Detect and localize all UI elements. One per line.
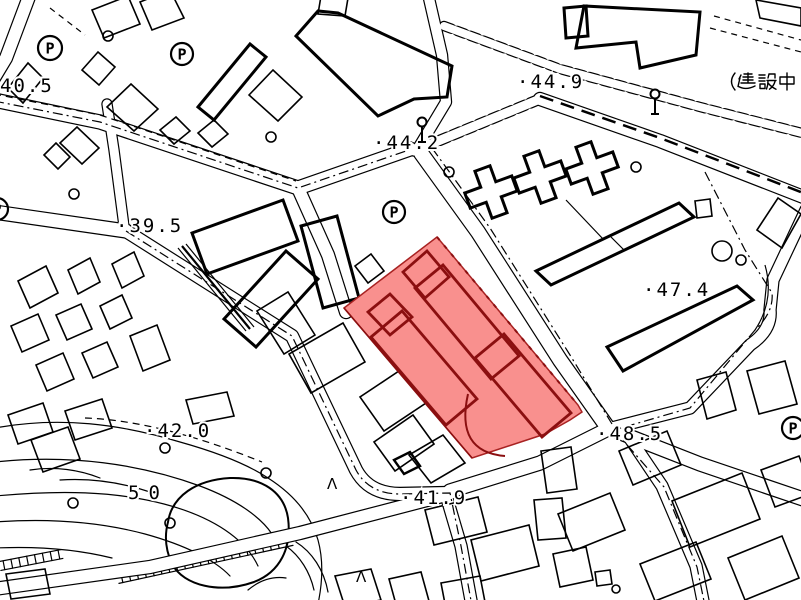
vegetation-circle-icon	[266, 132, 276, 142]
spot-elevation-label: 40.5	[0, 75, 54, 97]
map-viewport: PPPPPΛΛ 40.5·39.5·44.2·44.9·47.4·42.0·41…	[0, 0, 801, 600]
building	[534, 498, 566, 540]
road-surface	[540, 99, 801, 198]
building	[82, 342, 118, 378]
building	[130, 325, 170, 371]
streetlight-icon	[651, 90, 660, 115]
building	[11, 314, 49, 352]
building	[56, 304, 92, 340]
building	[747, 361, 797, 414]
spot-elevation-label: ·44.2	[373, 132, 440, 154]
building	[112, 252, 144, 288]
building	[68, 258, 100, 294]
building	[409, 435, 465, 483]
building	[728, 536, 799, 600]
parking-icon: P	[171, 43, 193, 65]
building	[100, 295, 132, 329]
parking-letter: P	[788, 420, 797, 438]
building-long	[536, 203, 694, 285]
parking-icon: P	[38, 36, 62, 60]
building	[756, 0, 801, 26]
building	[18, 266, 58, 308]
building	[36, 353, 74, 391]
vegetation-circle-icon	[631, 162, 641, 172]
building	[140, 0, 184, 30]
spot-elevation-label: ·41.9	[400, 487, 467, 509]
vegetation-circle-icon	[68, 498, 78, 508]
parking-letter: P	[0, 201, 2, 219]
building	[558, 493, 625, 551]
building-large	[576, 6, 700, 68]
map-canvas: PPPPPΛΛ 40.5·39.5·44.2·44.9·47.4·42.0·41…	[0, 0, 801, 600]
vegetation-circle-icon	[712, 241, 732, 261]
building	[82, 52, 115, 85]
building	[389, 572, 429, 600]
building	[595, 570, 612, 586]
building	[355, 254, 384, 283]
slope-mark-icon: Λ	[327, 475, 338, 493]
building	[553, 547, 593, 587]
building	[198, 120, 228, 147]
building	[374, 415, 434, 471]
building	[672, 473, 760, 547]
parking-icon: P	[383, 201, 405, 223]
slope-mark-icon: Λ	[356, 568, 367, 586]
spot-elevation-label: ·42.0	[144, 420, 211, 442]
building	[92, 0, 140, 38]
building	[60, 127, 99, 164]
parking-letter: P	[177, 46, 186, 64]
vegetation-circle-icon	[69, 189, 79, 199]
vegetation-circle-icon	[736, 255, 746, 265]
spot-elevation-label: ·48.5	[596, 423, 663, 445]
construction-label	[732, 73, 795, 90]
spot-elevation-label: ·47.4	[643, 279, 710, 301]
vegetation-circle-icon	[160, 443, 170, 453]
vegetation-circle-icon	[165, 518, 175, 528]
terrain-contours	[0, 422, 328, 600]
building	[249, 70, 302, 121]
parking-letter: P	[45, 40, 54, 58]
parking-icon: P	[782, 417, 801, 439]
building	[65, 399, 112, 440]
spot-elevation-label: ·44.9	[517, 71, 584, 93]
building-large	[192, 200, 298, 274]
vegetation-circle-icon	[612, 585, 620, 593]
contour-label: 50	[128, 482, 169, 504]
building-cross	[560, 136, 624, 200]
building-cross	[508, 145, 572, 209]
parking-letter: P	[389, 204, 398, 222]
road-surface	[0, 495, 446, 589]
building	[695, 199, 712, 218]
building	[44, 143, 70, 169]
spot-elevation-label: ·39.5	[116, 215, 183, 237]
building-large	[198, 44, 266, 120]
building-large	[296, 11, 452, 116]
